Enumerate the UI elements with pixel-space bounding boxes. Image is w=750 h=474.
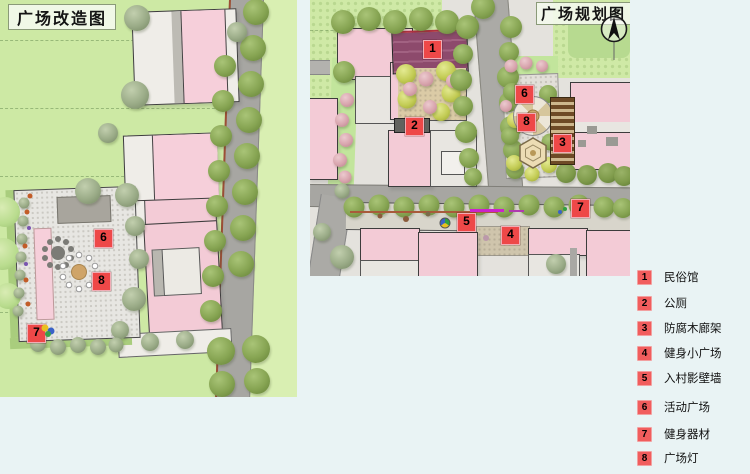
legend-key-1: 1 xyxy=(637,270,652,285)
tree xyxy=(423,100,437,114)
legend-item: 3防腐木廊架 xyxy=(630,321,722,335)
plant xyxy=(26,302,31,307)
plant xyxy=(25,210,30,215)
marker-fitness-equipment: 7 xyxy=(571,199,590,218)
tree xyxy=(455,121,477,143)
plant xyxy=(28,194,33,199)
legend-item: 4健身小广场 xyxy=(630,346,722,360)
fitness-equipment xyxy=(558,210,562,214)
legend-key-2: 2 xyxy=(637,296,652,311)
tree xyxy=(208,160,230,182)
plant xyxy=(24,262,28,266)
legend-label-7: 健身器材 xyxy=(664,426,710,442)
marker-folk-museum: 1 xyxy=(423,40,442,59)
tree xyxy=(333,61,355,83)
tree xyxy=(207,337,235,365)
legend-key-7: 7 xyxy=(637,427,652,442)
tree xyxy=(228,251,254,277)
legend-label-3: 防腐木廊架 xyxy=(664,320,722,336)
tree xyxy=(242,335,270,363)
marker-plaza-lamp: 8 xyxy=(92,272,111,291)
plant xyxy=(23,244,28,249)
tree xyxy=(200,300,222,322)
tree xyxy=(19,198,30,209)
tree xyxy=(536,60,548,72)
tree xyxy=(450,69,472,91)
tree xyxy=(500,100,512,112)
tree xyxy=(122,287,146,311)
plaza-flower xyxy=(483,235,489,241)
tree xyxy=(124,5,150,31)
tree xyxy=(383,10,407,34)
north-arrow-icon xyxy=(598,14,630,62)
tree xyxy=(546,254,566,274)
courtyard xyxy=(570,122,630,132)
pavilion-hexagon xyxy=(516,136,550,170)
tree xyxy=(209,371,235,397)
tree xyxy=(202,265,224,287)
legend-label-6: 活动广场 xyxy=(664,399,710,415)
legend: 1民俗馆 2公厕 3防腐木廊架 4健身小广场 5入村影壁墙 6活动广场 7健身器… xyxy=(630,262,750,474)
tree xyxy=(214,55,236,77)
screen-wall-line xyxy=(509,210,524,212)
planning-map: 1 2 6 8 3 5 4 7 广场规划图 xyxy=(310,0,630,276)
legend-item: 1民俗馆 xyxy=(630,270,699,284)
tree xyxy=(111,321,129,339)
legend-key-3: 3 xyxy=(637,321,652,336)
tree xyxy=(544,197,565,218)
tree xyxy=(453,44,473,64)
renovation-plan-map: 6 8 7 广场改造图 xyxy=(0,0,297,397)
building-pink xyxy=(528,228,588,256)
tree xyxy=(232,179,258,205)
building-wing xyxy=(570,248,577,276)
tree xyxy=(206,195,228,217)
tree xyxy=(227,22,247,42)
tree xyxy=(594,197,615,218)
wood-pergola xyxy=(550,97,575,165)
tree xyxy=(75,178,101,204)
tree xyxy=(339,171,352,184)
left-map-title: 广场改造图 xyxy=(8,4,116,30)
building-wing xyxy=(606,137,618,146)
legend-label-1: 民俗馆 xyxy=(664,269,699,285)
tree xyxy=(519,195,540,216)
tree xyxy=(243,0,269,25)
tree xyxy=(339,133,353,147)
road-stub xyxy=(310,60,330,75)
tree xyxy=(459,148,479,168)
legend-key-4: 4 xyxy=(637,346,652,361)
tree xyxy=(13,306,24,317)
building-pink xyxy=(586,230,630,276)
tree xyxy=(115,183,139,207)
tree xyxy=(141,333,159,351)
legend-label-5: 入村影壁墙 xyxy=(664,370,722,386)
building-pink xyxy=(388,130,432,187)
tree xyxy=(456,17,478,39)
marker-screen-wall: 5 xyxy=(457,213,476,232)
tree xyxy=(238,71,264,97)
marker-plaza-lamp: 8 xyxy=(517,113,536,132)
tree xyxy=(50,339,66,355)
fitness-equipment xyxy=(563,207,567,211)
screen-wall-line xyxy=(470,209,504,212)
shrub xyxy=(403,216,409,222)
tree xyxy=(577,165,597,185)
marker-activity-plaza: 6 xyxy=(94,229,113,248)
tree xyxy=(613,198,630,218)
tree xyxy=(18,216,29,227)
fitness-equipment xyxy=(45,331,51,337)
legend-item: 2公厕 xyxy=(630,296,687,310)
building-pink xyxy=(360,228,420,262)
tree xyxy=(357,7,381,31)
tree xyxy=(90,339,106,355)
tree xyxy=(109,338,124,353)
building-pink xyxy=(310,98,338,180)
tree xyxy=(98,123,118,143)
legend-item: 8广场灯 xyxy=(630,451,699,465)
tree xyxy=(464,168,482,186)
tree xyxy=(313,223,331,241)
tree xyxy=(333,153,347,167)
shrub xyxy=(426,212,431,217)
legend-label-2: 公厕 xyxy=(664,295,687,311)
legend-key-8: 8 xyxy=(637,451,652,466)
marker-activity-plaza: 6 xyxy=(515,85,534,104)
tree xyxy=(330,245,354,269)
tree xyxy=(16,252,27,263)
marker-public-toilet: 2 xyxy=(405,117,424,136)
tree xyxy=(176,331,194,349)
tree xyxy=(331,10,355,34)
tree xyxy=(500,16,522,38)
building-white xyxy=(161,247,201,296)
tree xyxy=(344,197,365,218)
tree xyxy=(204,230,226,252)
legend-label-8: 广场灯 xyxy=(664,450,699,466)
tree xyxy=(210,125,232,147)
tree xyxy=(14,288,25,299)
field-line xyxy=(0,108,225,109)
tree xyxy=(453,96,473,116)
marker-fitness-small-plaza: 4 xyxy=(501,226,520,245)
tree xyxy=(520,57,533,70)
tree xyxy=(340,93,354,107)
tree xyxy=(335,184,350,199)
tree xyxy=(494,197,515,218)
shrub xyxy=(378,214,383,219)
legend-key-5: 5 xyxy=(637,371,652,386)
tree xyxy=(212,90,234,112)
tree xyxy=(409,7,433,31)
tree xyxy=(394,197,415,218)
tree xyxy=(125,216,145,236)
tree xyxy=(129,249,149,269)
tree xyxy=(419,72,434,87)
building-wing xyxy=(578,140,586,147)
marker-wood-pergola: 3 xyxy=(553,134,572,153)
tree xyxy=(236,107,262,133)
building-pink xyxy=(570,132,630,170)
tree xyxy=(403,82,417,96)
legend-label-4: 健身小广场 xyxy=(664,345,722,361)
tree xyxy=(335,113,349,127)
building-pink xyxy=(418,232,478,276)
tree xyxy=(121,81,149,109)
courtyard xyxy=(360,260,420,276)
tree xyxy=(614,166,630,186)
fitness-equipment xyxy=(440,218,451,229)
tree xyxy=(505,60,518,73)
legend-item: 6活动广场 xyxy=(630,400,710,414)
plant xyxy=(27,226,31,230)
tree xyxy=(230,215,256,241)
tree xyxy=(244,368,270,394)
legend-item: 5入村影壁墙 xyxy=(630,371,722,385)
tree xyxy=(234,143,260,169)
tree xyxy=(556,163,576,183)
building-pink xyxy=(570,82,630,124)
tree xyxy=(70,337,86,353)
building-wing xyxy=(587,126,597,134)
plant xyxy=(24,278,29,283)
legend-key-6: 6 xyxy=(637,400,652,415)
legend-item: 7健身器材 xyxy=(630,427,710,441)
tree xyxy=(396,64,416,84)
